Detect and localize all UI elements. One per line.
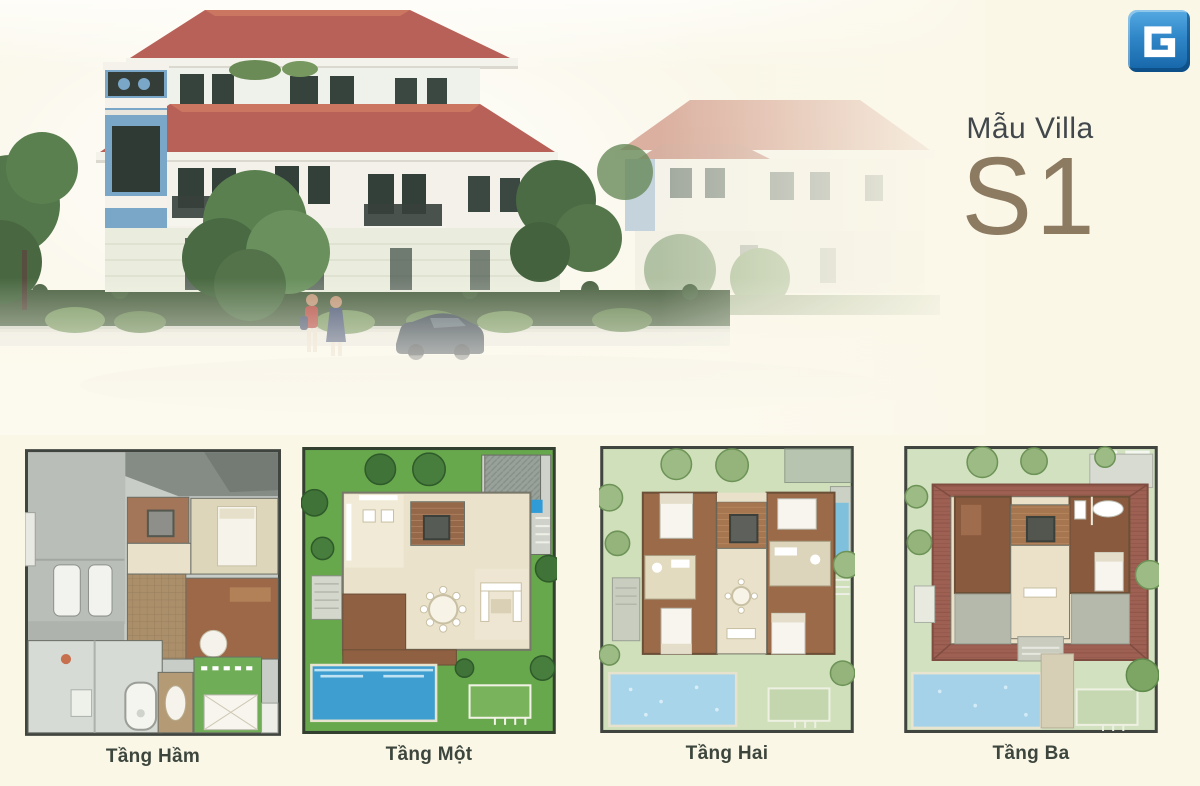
villa-rendering: [0, 0, 985, 435]
floor-plan-second: Tầng Hai: [599, 446, 855, 765]
floor-plan-basement-drawing: [25, 449, 281, 736]
villa-brochure: G Mẫu Villa S1: [0, 0, 1200, 786]
plan-label-third: Tầng Ba: [903, 743, 1159, 765]
title-block: Mẫu Villa S1: [930, 112, 1130, 247]
pool-below: [912, 673, 1041, 728]
floor-plan-first: Tầng Một: [301, 447, 557, 766]
brand-logo: G: [1128, 10, 1190, 72]
floor-plan-third-drawing: [903, 446, 1159, 733]
plan-label-second: Tầng Hai: [599, 743, 855, 765]
floor-plan-second-drawing: [599, 446, 855, 733]
plan-label-first: Tầng Một: [301, 744, 557, 766]
floor-plan-basement: Tầng Hầm: [25, 449, 281, 768]
floor-plan-third: Tầng Ba: [903, 446, 1159, 765]
pool-below: [609, 673, 736, 726]
villa-rendering-art: [0, 0, 985, 435]
plan-label-basement: Tầng Hầm: [25, 746, 281, 768]
villa-model-code: S1: [934, 146, 1126, 247]
swimming-pool: [311, 665, 436, 721]
floor-plan-first-drawing: [301, 447, 557, 734]
logo-g-icon: [1137, 19, 1181, 63]
